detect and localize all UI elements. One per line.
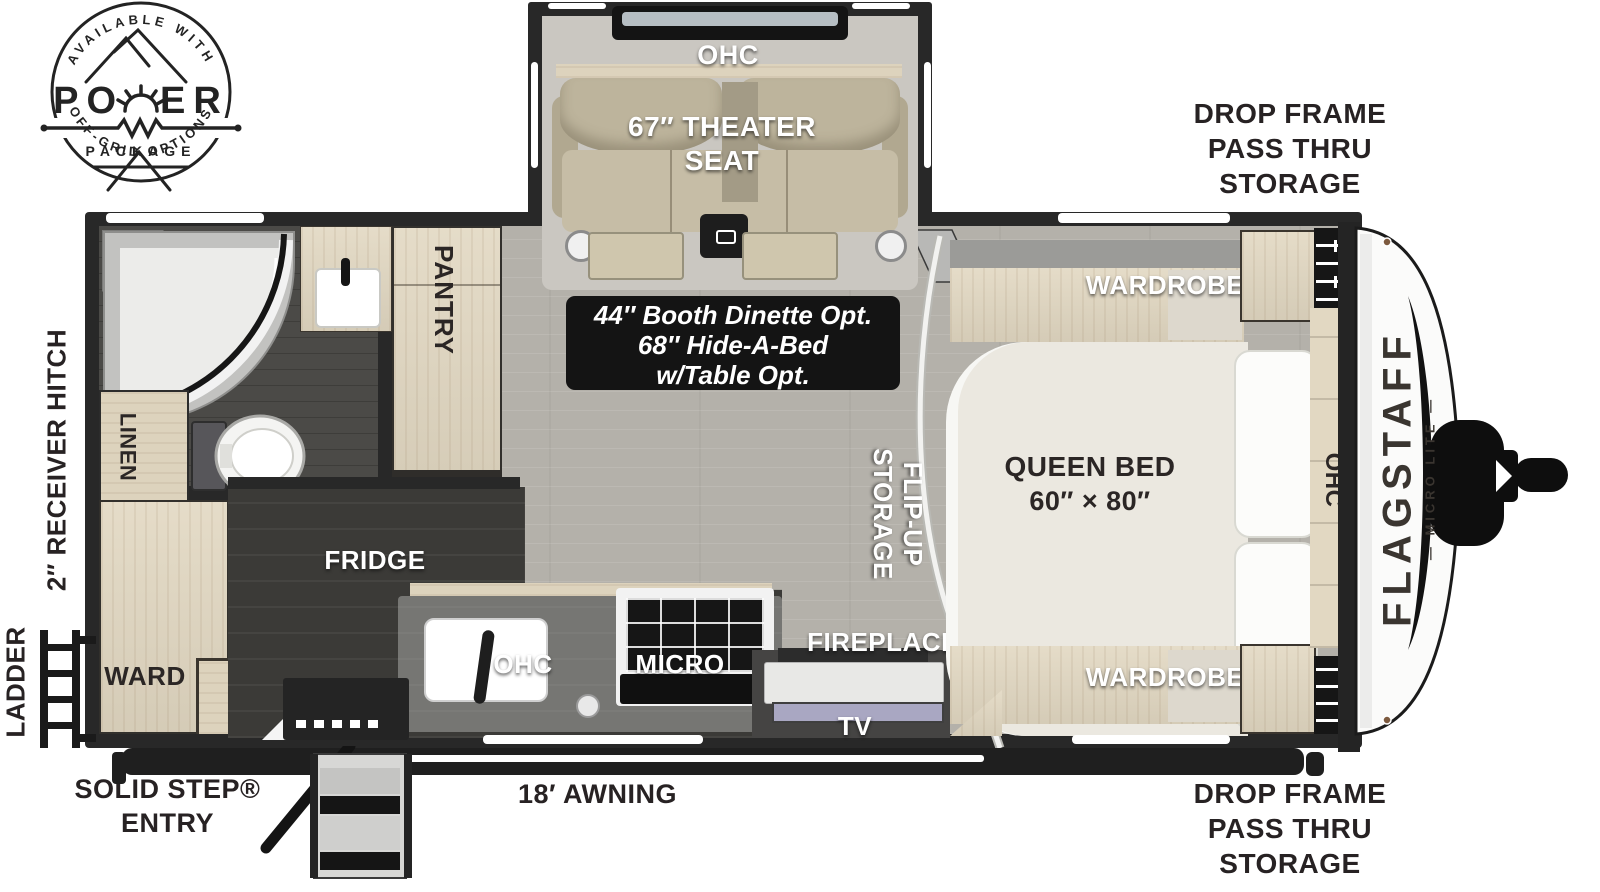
label-fridge: FRIDGE (280, 546, 470, 576)
propane-cover (1430, 420, 1504, 546)
label-pantry: PANTRY (428, 245, 458, 355)
linen-cabinet (99, 390, 189, 506)
label-theater-seat: 67″ THEATER SEAT (572, 110, 872, 178)
fridge-wall-top (228, 477, 520, 489)
label-ward: WARD (85, 662, 205, 692)
counter-knob (576, 694, 600, 718)
dinette-option-box: 44″ Booth Dinette Opt. 68″ Hide-A-Bed w/… (566, 296, 900, 390)
footrest-left (588, 232, 684, 280)
label-drop-frame-bottom: DROP FRAME PASS THRU STORAGE (1150, 776, 1430, 881)
label-awning: 18′ AWNING (480, 779, 715, 810)
awning-bar-hook (112, 752, 126, 784)
label-micro: MICRO (600, 650, 760, 680)
label-solid-step-entry: SOLID STEP® ENTRY (55, 772, 280, 840)
hanger-cabinet-top (1240, 230, 1316, 322)
window-top-bedroom (1058, 213, 1230, 223)
brand-micro-lite: — MICRO LITE — (1423, 396, 1438, 560)
badge-power-right: ER (160, 80, 229, 122)
window-top-bath (106, 213, 264, 223)
cap-screw-bottom (1383, 716, 1391, 724)
label-ohc-kitchen: OHC (448, 650, 598, 680)
bedroom-band-top-gray (950, 240, 1244, 268)
label-queen-bed: QUEEN BED 60″ × 80″ (955, 450, 1225, 518)
hanger-cabinet-bottom (1240, 644, 1316, 734)
power-package-badge: AVAILABLE WITH PO ER PACKAGE OFF-GRID OP… (36, 0, 246, 192)
label-receiver-hitch: 2″ RECEIVER HITCH (42, 329, 73, 591)
bed-pillow-top (1234, 350, 1318, 538)
label-linen: LINEN (115, 413, 140, 482)
brand-flagstaff: FLAGSTAFF (1376, 329, 1421, 627)
sun-icon (118, 86, 164, 111)
cupholder-right (875, 230, 907, 262)
cap-screw-top (1383, 238, 1391, 246)
entry-steps (258, 746, 418, 882)
window-bottom-kitchen (483, 735, 703, 744)
badge-power-left: PO (53, 80, 124, 122)
footrest-right (742, 232, 838, 280)
label-flip-up-storage: FLIP-UP STORAGE (868, 448, 928, 580)
label-ohc-slide: OHC (578, 40, 878, 71)
entry-mat (283, 678, 409, 740)
console-icon (716, 230, 736, 244)
slideout-window-glass (622, 12, 838, 26)
label-drop-frame-top: DROP FRAME PASS THRU STORAGE (1150, 96, 1430, 201)
window-bottom-bedroom (1072, 735, 1230, 744)
entry-mat-dashes (296, 720, 384, 728)
bath-faucet (341, 258, 350, 286)
jack-handle (1514, 458, 1568, 492)
rear-ladder (34, 626, 98, 752)
label-ladder: LADDER (1, 626, 32, 737)
awning-bar-endcap (1306, 752, 1324, 776)
awning-bar-stripe (356, 755, 984, 762)
floorplan-canvas: AVAILABLE WITH PO ER PACKAGE OFF-GRID OP… (0, 0, 1600, 892)
